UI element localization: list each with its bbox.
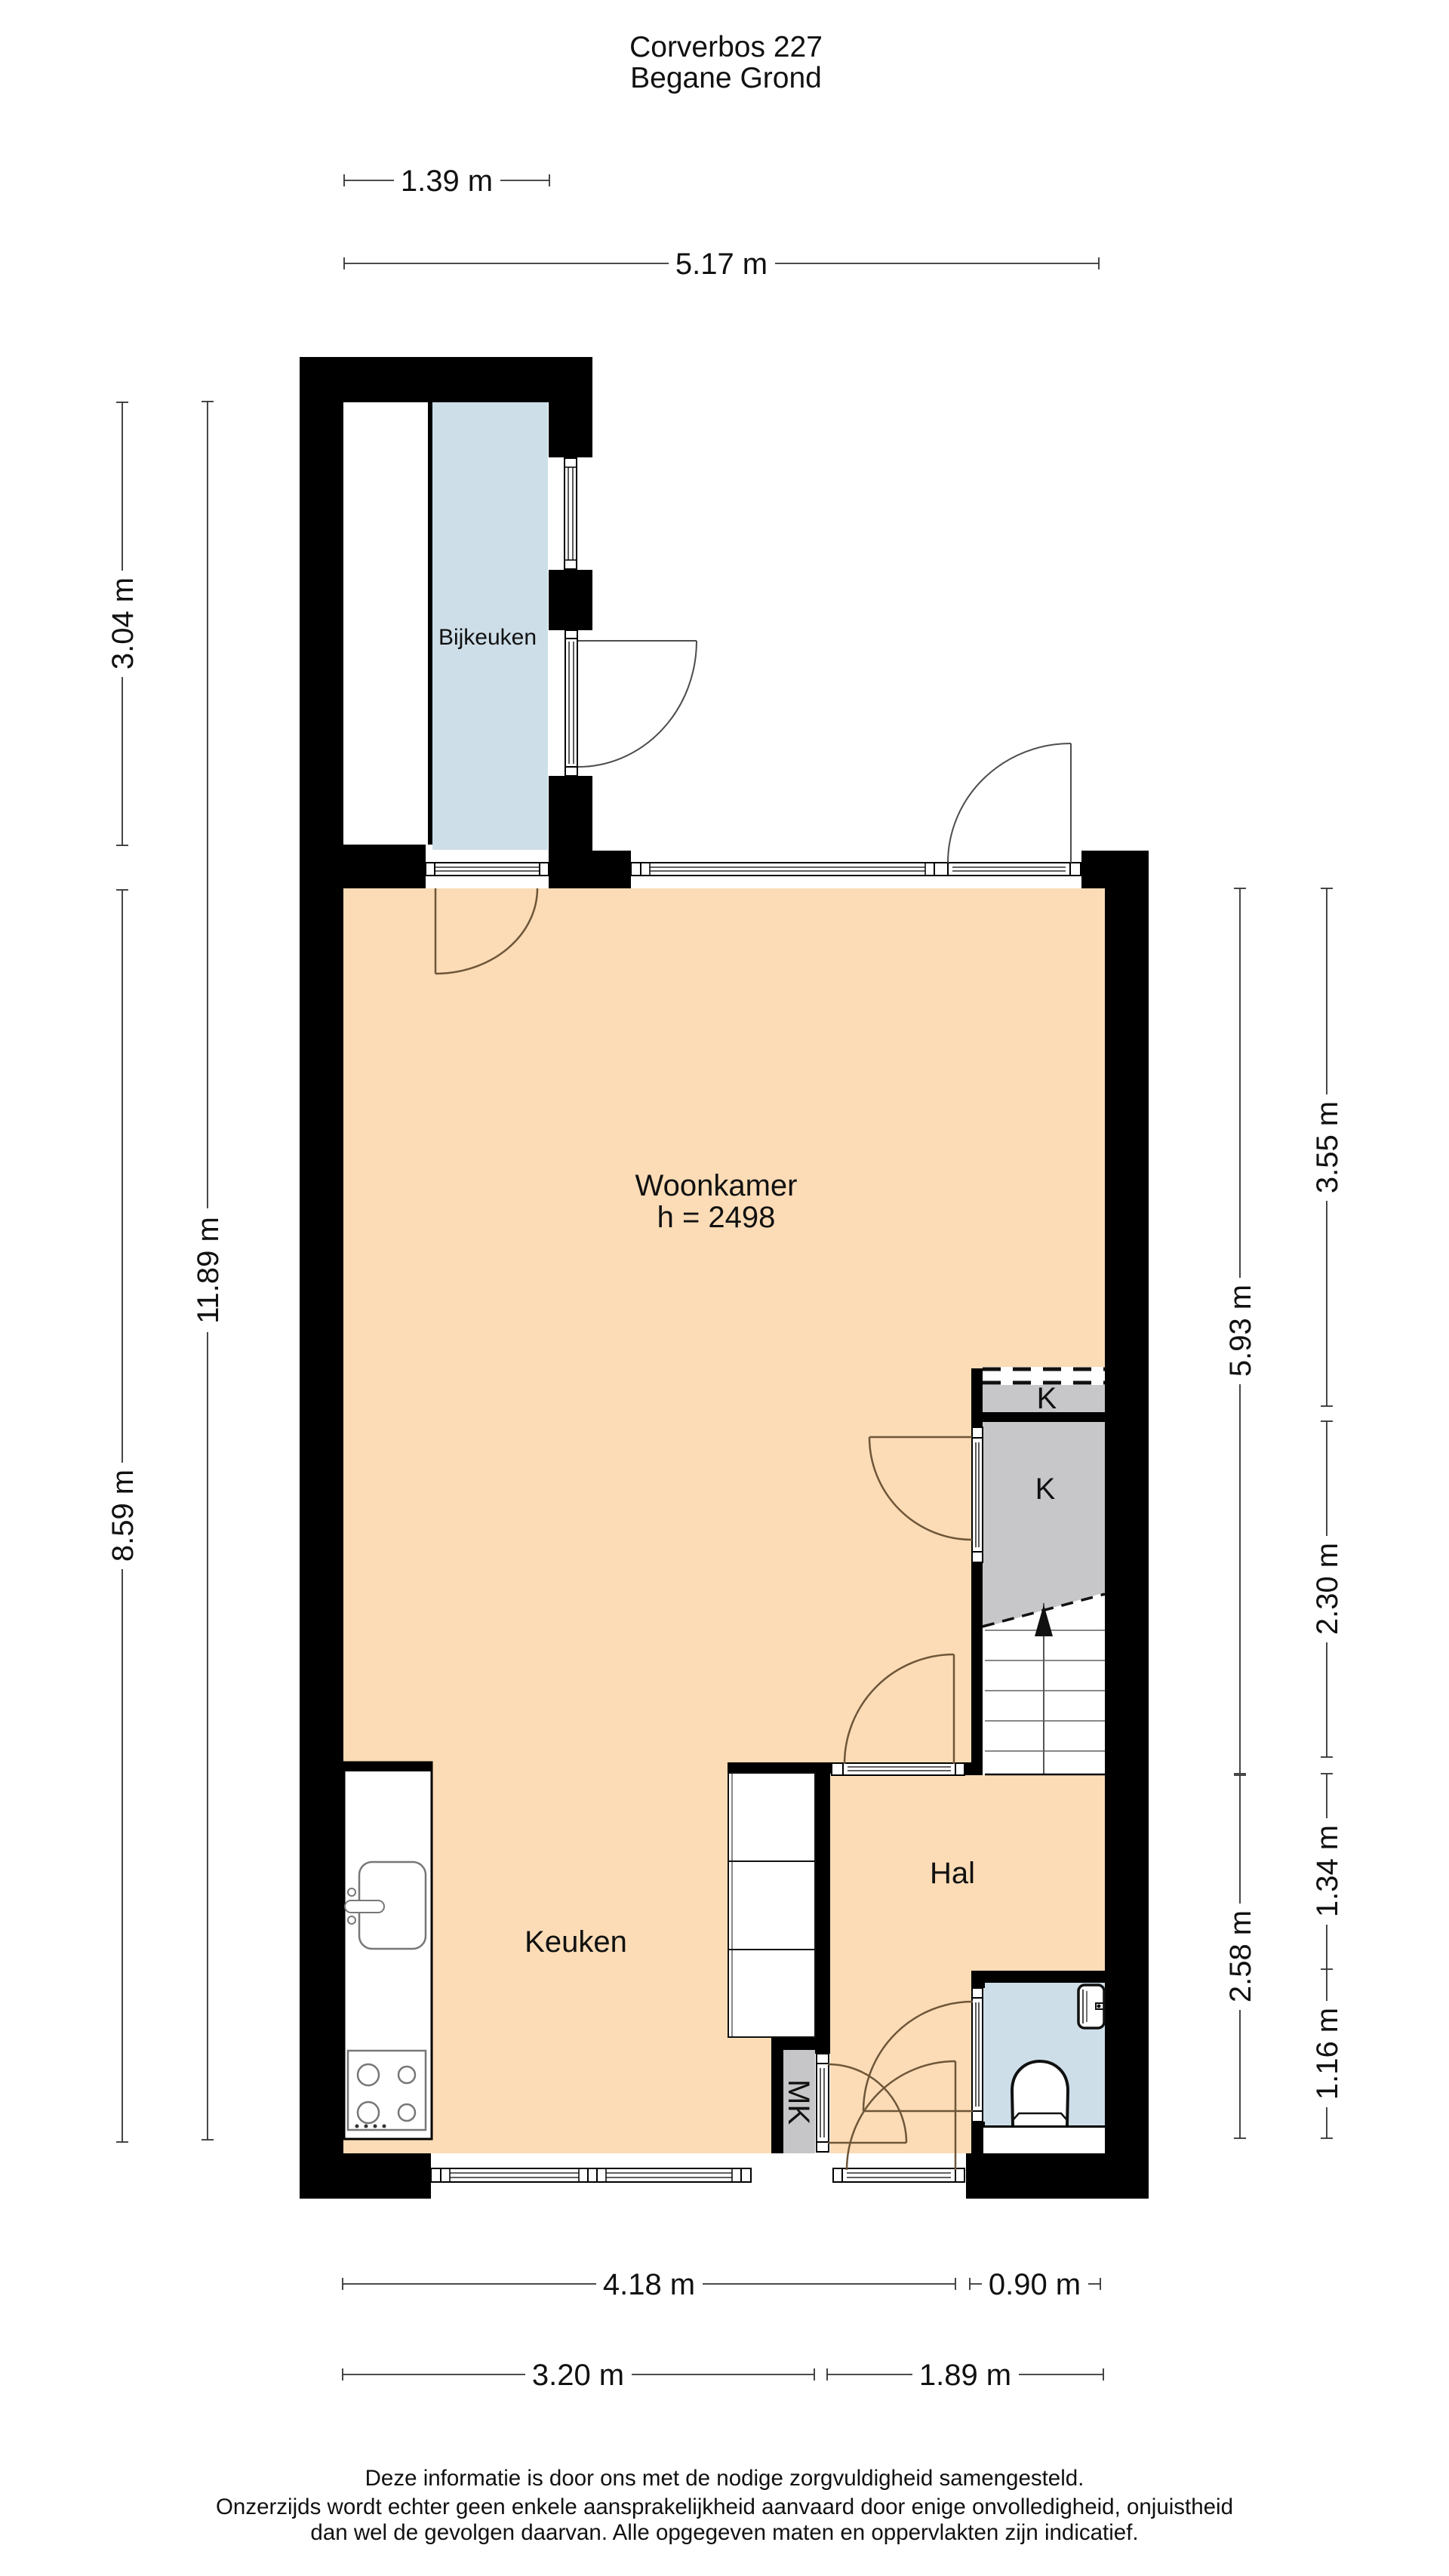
svg-text:3.04 m: 3.04 m (106, 577, 140, 669)
svg-text:11.89 m: 11.89 m (192, 1217, 225, 1324)
svg-text:1.39 m: 1.39 m (401, 165, 493, 198)
svg-text:Corverbos 227: Corverbos 227 (629, 31, 823, 63)
svg-text:2.30 m: 2.30 m (1311, 1543, 1344, 1635)
svg-text:1.89 m: 1.89 m (919, 2359, 1011, 2392)
svg-text:1.34 m: 1.34 m (1311, 1825, 1344, 1917)
svg-text:Deze informatie is door ons me: Deze informatie is door ons met de nodig… (365, 2466, 1084, 2491)
svg-text:h = 2498: h = 2498 (657, 1201, 776, 1234)
svg-text:Hal: Hal (930, 1857, 975, 1890)
svg-text:Begane Grond: Begane Grond (630, 62, 822, 94)
svg-text:K: K (1037, 1382, 1057, 1415)
svg-text:0.90 m: 0.90 m (989, 2268, 1081, 2301)
svg-text:Onzerzijds wordt echter geen e: Onzerzijds wordt echter geen enkele aans… (216, 2494, 1233, 2519)
svg-text:4.18 m: 4.18 m (603, 2268, 695, 2301)
svg-text:dan wel de gevolgen daarvan. A: dan wel de gevolgen daarvan. Alle opgege… (310, 2520, 1138, 2545)
svg-text:3.55 m: 3.55 m (1311, 1101, 1344, 1193)
svg-text:2.58 m: 2.58 m (1224, 1910, 1257, 2002)
svg-text:Bijkeuken: Bijkeuken (438, 625, 537, 650)
svg-text:8.59 m: 8.59 m (106, 1470, 140, 1562)
svg-text:Woonkamer: Woonkamer (635, 1169, 798, 1202)
svg-text:5.93 m: 5.93 m (1224, 1285, 1257, 1377)
svg-text:1.16 m: 1.16 m (1311, 2008, 1344, 2100)
svg-text:MK: MK (782, 2079, 815, 2125)
svg-text:K: K (1035, 1473, 1056, 1506)
svg-text:Keuken: Keuken (525, 1925, 627, 1959)
svg-text:5.17 m: 5.17 m (675, 248, 768, 281)
svg-text:3.20 m: 3.20 m (532, 2359, 624, 2392)
